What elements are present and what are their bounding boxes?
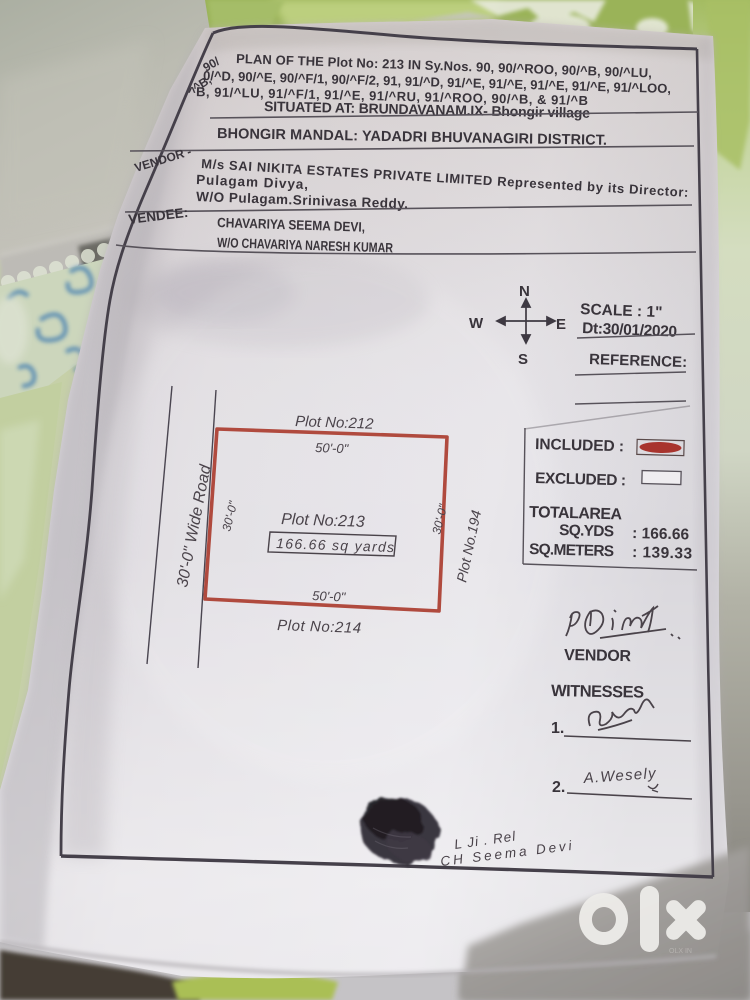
svg-text:WITNESSES: WITNESSES: [551, 682, 644, 702]
svg-text:E: E: [556, 316, 566, 333]
svg-text:N: N: [519, 283, 530, 300]
svg-text:: 166.66: : 166.66: [632, 525, 690, 543]
svg-text:EXCLUDED :: EXCLUDED :: [535, 470, 626, 489]
svg-text:SQ.METERS: SQ.METERS: [529, 541, 614, 560]
svg-text:S: S: [518, 351, 528, 368]
svg-text:50'-0": 50'-0": [312, 588, 347, 605]
svg-text:2.: 2.: [552, 779, 565, 796]
svg-text:W: W: [469, 315, 484, 332]
svg-text:: 139.33: : 139.33: [632, 544, 693, 563]
svg-text:SQ.YDS: SQ.YDS: [559, 522, 614, 540]
svg-text:SCALE : 1": SCALE : 1": [580, 301, 663, 321]
svg-text:INCLUDED :: INCLUDED :: [535, 436, 624, 455]
svg-text:50'-0": 50'-0": [315, 440, 350, 456]
svg-text:OLX IN: OLX IN: [669, 948, 692, 955]
svg-text:Plot No:212: Plot No:212: [295, 413, 375, 433]
svg-text:1.: 1.: [551, 720, 564, 737]
svg-text:TOTALAREA: TOTALAREA: [529, 504, 623, 523]
svg-text:REFERENCE:: REFERENCE:: [589, 351, 687, 371]
svg-text:VENDOR: VENDOR: [564, 647, 632, 665]
svg-text:Plot No:214: Plot No:214: [277, 617, 362, 637]
svg-text:Plot No:213: Plot No:213: [281, 511, 365, 531]
